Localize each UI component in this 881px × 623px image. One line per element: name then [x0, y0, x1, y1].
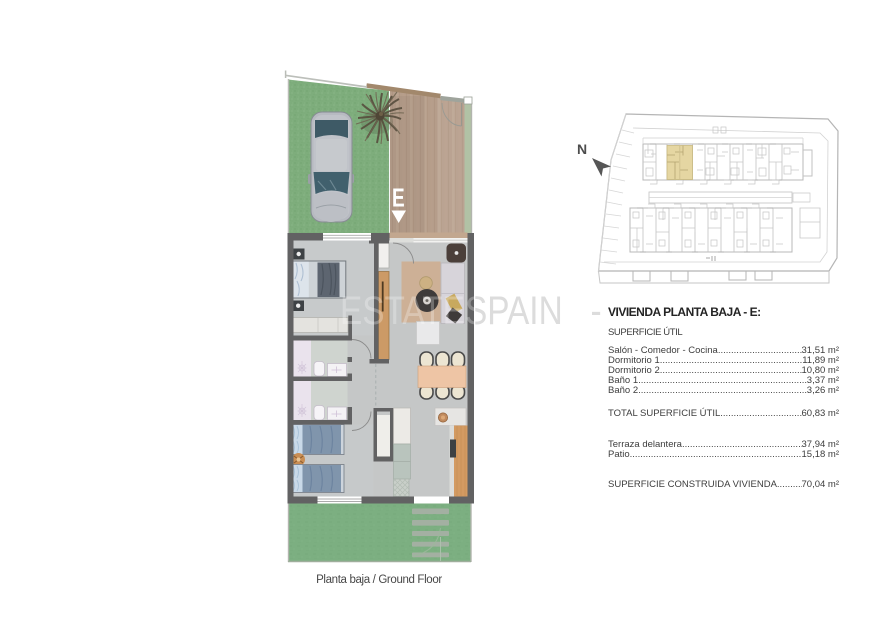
svg-text:N: N: [577, 141, 587, 157]
svg-text:E: E: [392, 183, 405, 213]
